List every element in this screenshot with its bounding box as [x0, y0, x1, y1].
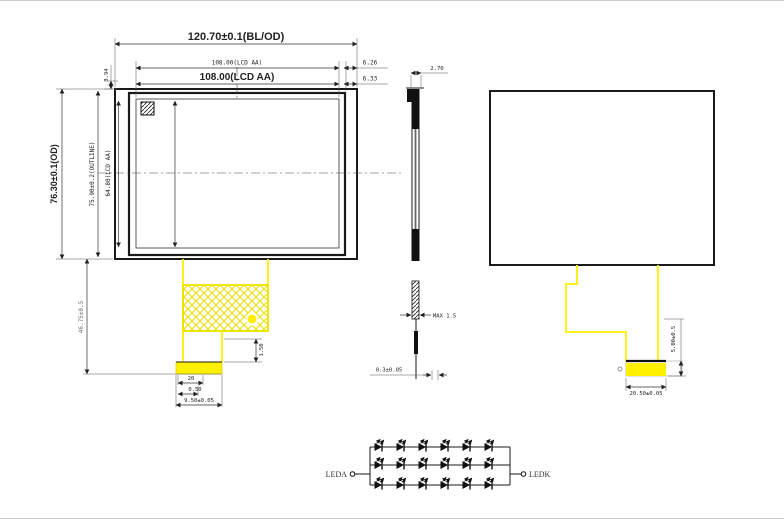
led-symbol: [419, 458, 428, 470]
led-symbol: [485, 458, 494, 470]
rear-outline: [490, 91, 714, 265]
active-area-outline: [136, 99, 339, 248]
drawing-canvas: 120.70±0.1(BL/OD) 108.00(LCD AA) 6.26 10…: [0, 0, 784, 519]
dim-aa-width-small: 108.00(LCD AA): [212, 60, 263, 67]
dim-connector-width-front: 9.50±0.05: [184, 398, 214, 404]
led-circuit: LEDA LEDK: [326, 440, 551, 490]
led-symbol: [397, 440, 406, 452]
side-view: 2.70 MAX 1.5 0.3±0.05: [370, 66, 456, 380]
led-symbol: [375, 458, 384, 470]
dim-film: 0.3±0.05: [376, 368, 403, 374]
anode-terminal: [350, 472, 355, 477]
fpc-connector: [176, 362, 222, 374]
led-symbol: [463, 478, 472, 490]
led-symbol: [485, 478, 494, 490]
led-symbol: [463, 458, 472, 470]
dim-pin-pitch: 0.50: [188, 387, 201, 393]
profile-upper-stack: [412, 89, 419, 129]
rear-connector: [626, 363, 666, 376]
fpc-rear-trace-left: [566, 265, 626, 361]
dim-thickness: 2.70: [430, 66, 443, 72]
fpc-side-stiffener: [414, 331, 418, 354]
rear-connector-extension-lines: [626, 378, 666, 391]
dim-rear-connector-width: 20.50±0.05: [629, 391, 662, 397]
dim-outer-width: 120.70±0.1(BL/OD): [188, 31, 285, 43]
led-symbol: [441, 440, 450, 452]
led-symbol: [397, 458, 406, 470]
dim-right-offset-top: 6.26: [363, 60, 378, 67]
dim-top-offset: 3.94: [104, 68, 110, 82]
led-symbol: [441, 478, 450, 490]
dim-connector-gap: 1.50: [259, 343, 265, 356]
lcd-module-drawing: 120.70±0.1(BL/OD) 108.00(LCD AA) 6.26 10…: [0, 1, 784, 520]
dim-outer-height: 76.30±0.1(OD): [49, 144, 59, 203]
fpc-tail-lines: [183, 331, 222, 362]
profile-lower-stack: [412, 229, 419, 261]
led-symbol: [463, 440, 472, 452]
led-symbol: [419, 440, 428, 452]
cathode-label: LEDK: [529, 470, 551, 479]
dim-stiffener-height: 5.00±0.5: [671, 326, 677, 353]
cathode-terminal: [521, 472, 526, 477]
thickness-extension-lines: [411, 75, 421, 87]
fpc-alignment-dot: [247, 314, 258, 325]
bezel-outline: [129, 93, 345, 255]
fpc-side-hatched-bar: [412, 281, 419, 319]
pin1-mark: [618, 367, 622, 371]
dim-pin-count: 20: [188, 376, 195, 382]
front-view: 120.70±0.1(BL/OD) 108.00(LCD AA) 6.26 10…: [49, 31, 404, 407]
dim-aa-width-bold: 108.00(LCD AA): [200, 72, 275, 83]
profile-top-nub: [407, 89, 412, 102]
led-symbol: [419, 478, 428, 490]
corner-mark-hatched: [141, 102, 154, 115]
led-symbol: [485, 440, 494, 452]
fpc-edge-lines: [183, 259, 268, 285]
dim-fpc-max: MAX 1.5: [433, 314, 456, 320]
led-symbol: [375, 478, 384, 490]
led-symbol: [441, 458, 450, 470]
anode-label: LEDA: [326, 470, 348, 479]
dim-fpc-length: 46.75±0.5: [78, 300, 85, 333]
fpc-front: [83, 259, 268, 374]
rear-view: 5.00±0.5 20.50±0.05: [490, 91, 714, 397]
dim-aa-height: 64.80(LCD AA): [105, 150, 112, 197]
led-symbol: [397, 478, 406, 490]
dim-outline-height: 75.90±0.2(OUTLINE): [89, 141, 96, 206]
dim-right-offset-bottom: 6.33: [363, 76, 378, 83]
led-symbol: [375, 440, 384, 452]
